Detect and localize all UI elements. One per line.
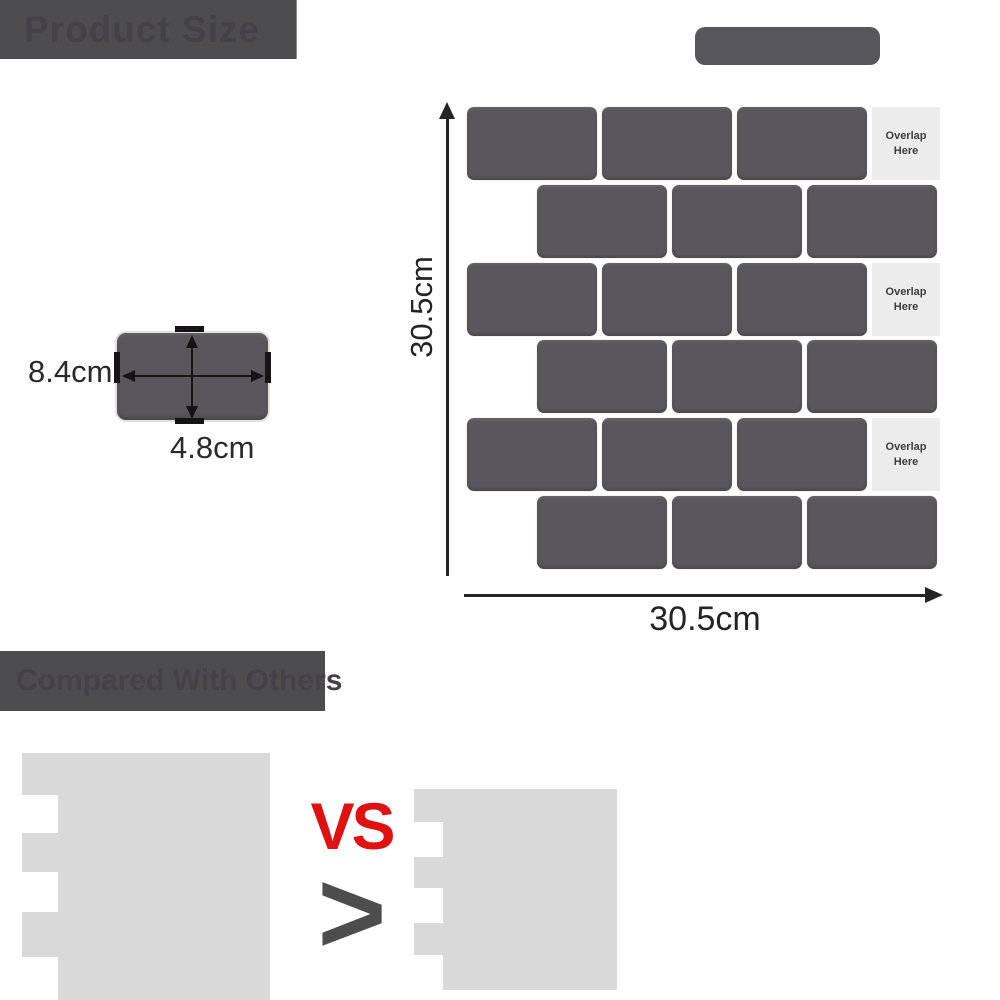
panel-width-label: 30.5cm xyxy=(625,600,785,639)
compare-banner-label: Compared With Others xyxy=(0,664,342,698)
tile xyxy=(672,185,802,258)
overlap-label: Overlap Here xyxy=(880,285,932,314)
tile xyxy=(602,107,732,180)
tile xyxy=(807,340,937,413)
tile-row: Overlap Here xyxy=(467,107,940,180)
tile xyxy=(467,418,597,491)
tile xyxy=(537,185,667,258)
overlap-label: Overlap Here xyxy=(880,129,932,158)
panel-height-label: 30.5cm xyxy=(403,251,441,363)
our-panel-silhouette xyxy=(22,753,270,1000)
tile-sheet: Overlap Here Overlap Here Overla xyxy=(460,100,944,576)
tile xyxy=(672,340,802,413)
tile-row xyxy=(537,185,937,258)
tile xyxy=(537,496,667,569)
tile xyxy=(737,107,867,180)
tile xyxy=(537,340,667,413)
overlap-zone: Overlap Here xyxy=(872,263,940,336)
tile-height-arrow xyxy=(191,343,193,411)
tile xyxy=(672,496,802,569)
product-infographic: Product Size 30.5cm 30.5cm Overlap Here … xyxy=(0,0,1000,1000)
tile-row xyxy=(537,496,937,569)
compare-banner: Compared With Others xyxy=(0,651,325,711)
other-panel-silhouette xyxy=(414,789,617,990)
tile-row: Overlap Here xyxy=(467,263,940,336)
greater-than-icon: > xyxy=(302,862,402,970)
arrow-head-right-icon xyxy=(251,370,264,382)
tick-mark xyxy=(175,326,204,332)
arrow-head-left-icon xyxy=(122,370,135,382)
product-size-banner-label: Product Size xyxy=(0,9,260,51)
tile xyxy=(602,263,732,336)
tile-width-arrow xyxy=(130,375,256,377)
arrow-head-down-icon xyxy=(186,406,198,419)
arrow-head-up-icon xyxy=(186,335,198,348)
overlap-zone: Overlap Here xyxy=(872,418,940,491)
tile xyxy=(467,263,597,336)
tile-row: Overlap Here xyxy=(467,418,940,491)
tile-row xyxy=(537,340,937,413)
tile-height-label: 4.8cm xyxy=(170,430,265,466)
tile xyxy=(602,418,732,491)
tile xyxy=(467,107,597,180)
tick-mark xyxy=(114,352,120,383)
product-size-banner: Product Size xyxy=(0,0,297,59)
tile-width-label: 8.4cm xyxy=(28,354,113,390)
tile xyxy=(807,185,937,258)
tile xyxy=(807,496,937,569)
tile xyxy=(737,263,867,336)
horizontal-dimension-line xyxy=(464,594,926,597)
overlap-zone: Overlap Here xyxy=(872,107,940,180)
tile xyxy=(737,418,867,491)
tick-mark xyxy=(265,352,271,383)
vertical-dimension-line xyxy=(446,117,449,576)
horizontal-arrow-head-icon xyxy=(925,587,943,603)
top-right-pill xyxy=(695,27,880,65)
overlap-label: Overlap Here xyxy=(880,440,932,469)
